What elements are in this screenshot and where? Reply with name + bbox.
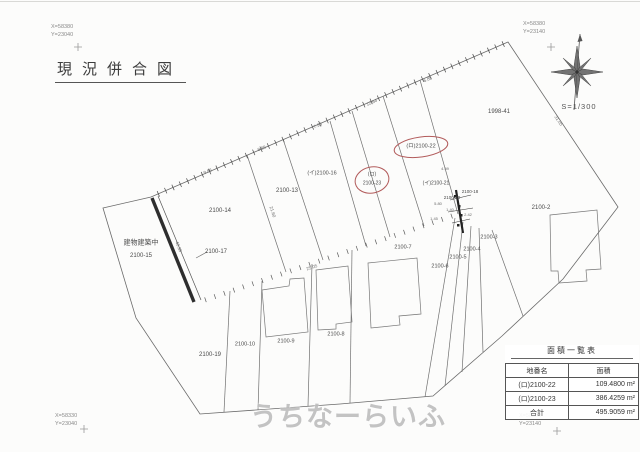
area-value-cell: 386.4259 m² bbox=[569, 392, 639, 406]
parcel-label: 2100-4 bbox=[463, 247, 480, 253]
measurement-label: 2.42 bbox=[464, 213, 472, 217]
parcel-label: 2100-2 bbox=[532, 205, 551, 211]
measurement-label: 1.45 bbox=[430, 217, 438, 221]
parcel-label: (ロ)2100-22 bbox=[406, 144, 435, 150]
parcel-label: 2100-15 bbox=[130, 253, 152, 259]
area-value-cell: 109.4800 m² bbox=[569, 378, 639, 392]
area-value-cell: 495.9059 m² bbox=[569, 406, 639, 420]
table-row: (ロ)2100-23386.4259 m² bbox=[506, 392, 639, 406]
parcel-label: 2100-13 bbox=[276, 188, 298, 194]
area-table-header-row: 地番名面積 bbox=[506, 364, 639, 378]
table-row: 合計495.9059 m² bbox=[506, 406, 639, 420]
area-table-title: 面積一覧表 bbox=[511, 345, 633, 359]
area-summary-table: 面積一覧表 地番名面積 (ロ)2100-22109.4800 m²(ロ)2100… bbox=[505, 345, 639, 420]
coordinate-label-top-left: X=58380 Y=23040 bbox=[51, 24, 73, 40]
parcel-label: (ロ) bbox=[368, 173, 376, 178]
parcel-label: 1998-41 bbox=[488, 109, 510, 115]
parcel-number-cell: (ロ)2100-22 bbox=[506, 378, 569, 392]
measurement-label: 1.40 bbox=[446, 208, 454, 212]
parcel-label: 2100-20 bbox=[444, 196, 461, 201]
measurement-label: 5.80 bbox=[434, 202, 442, 206]
survey-drawing-page: 現況併合図 X=58380 Y=23040 X=58380 Y=23140 X=… bbox=[0, 0, 640, 452]
parcel-label: 2100-19 bbox=[199, 352, 221, 358]
coordinate-label-bottom-left: X=58330 Y=23040 bbox=[55, 413, 77, 429]
parcel-label: 2100-17 bbox=[205, 249, 227, 255]
table-row: (ロ)2100-22109.4800 m² bbox=[506, 378, 639, 392]
parcel-label: 2100-9 bbox=[277, 339, 294, 345]
coordinate-label-top-right: X=58380 Y=23140 bbox=[523, 21, 545, 37]
parcel-number-cell: (ロ)2100-23 bbox=[506, 392, 569, 406]
parcel-label: 2100-7 bbox=[394, 245, 411, 251]
scale-label: S=1/300 bbox=[549, 102, 609, 111]
parcel-number-cell: 合計 bbox=[506, 406, 569, 420]
parcel-label: 2100-14 bbox=[209, 208, 231, 214]
compass-rose-icon bbox=[551, 34, 603, 110]
parcel-label: (イ)2100-16 bbox=[307, 171, 336, 177]
parcel-label: 建物建築中 bbox=[124, 240, 159, 247]
parcel-label: 2100-23 bbox=[363, 182, 381, 187]
parcel-label: 2100-10 bbox=[235, 342, 255, 348]
area-table-header-cell: 地番名 bbox=[506, 364, 569, 378]
parcel-label: 2100-5 bbox=[449, 255, 466, 261]
area-table-header-cell: 面積 bbox=[569, 364, 639, 378]
parcel-label: 2100-3 bbox=[480, 235, 497, 241]
parcel-label: (イ)2100-21 bbox=[423, 182, 450, 187]
parcel-label: 2100-18 bbox=[462, 190, 479, 195]
measurement-label: 4.59 bbox=[441, 167, 449, 171]
page-title: 現況併合図 bbox=[55, 58, 186, 83]
parcel-label: 2100-8 bbox=[327, 332, 344, 338]
watermark-text: うちなーらいふ bbox=[250, 395, 446, 434]
parcel-label: 2100-6 bbox=[431, 264, 448, 270]
